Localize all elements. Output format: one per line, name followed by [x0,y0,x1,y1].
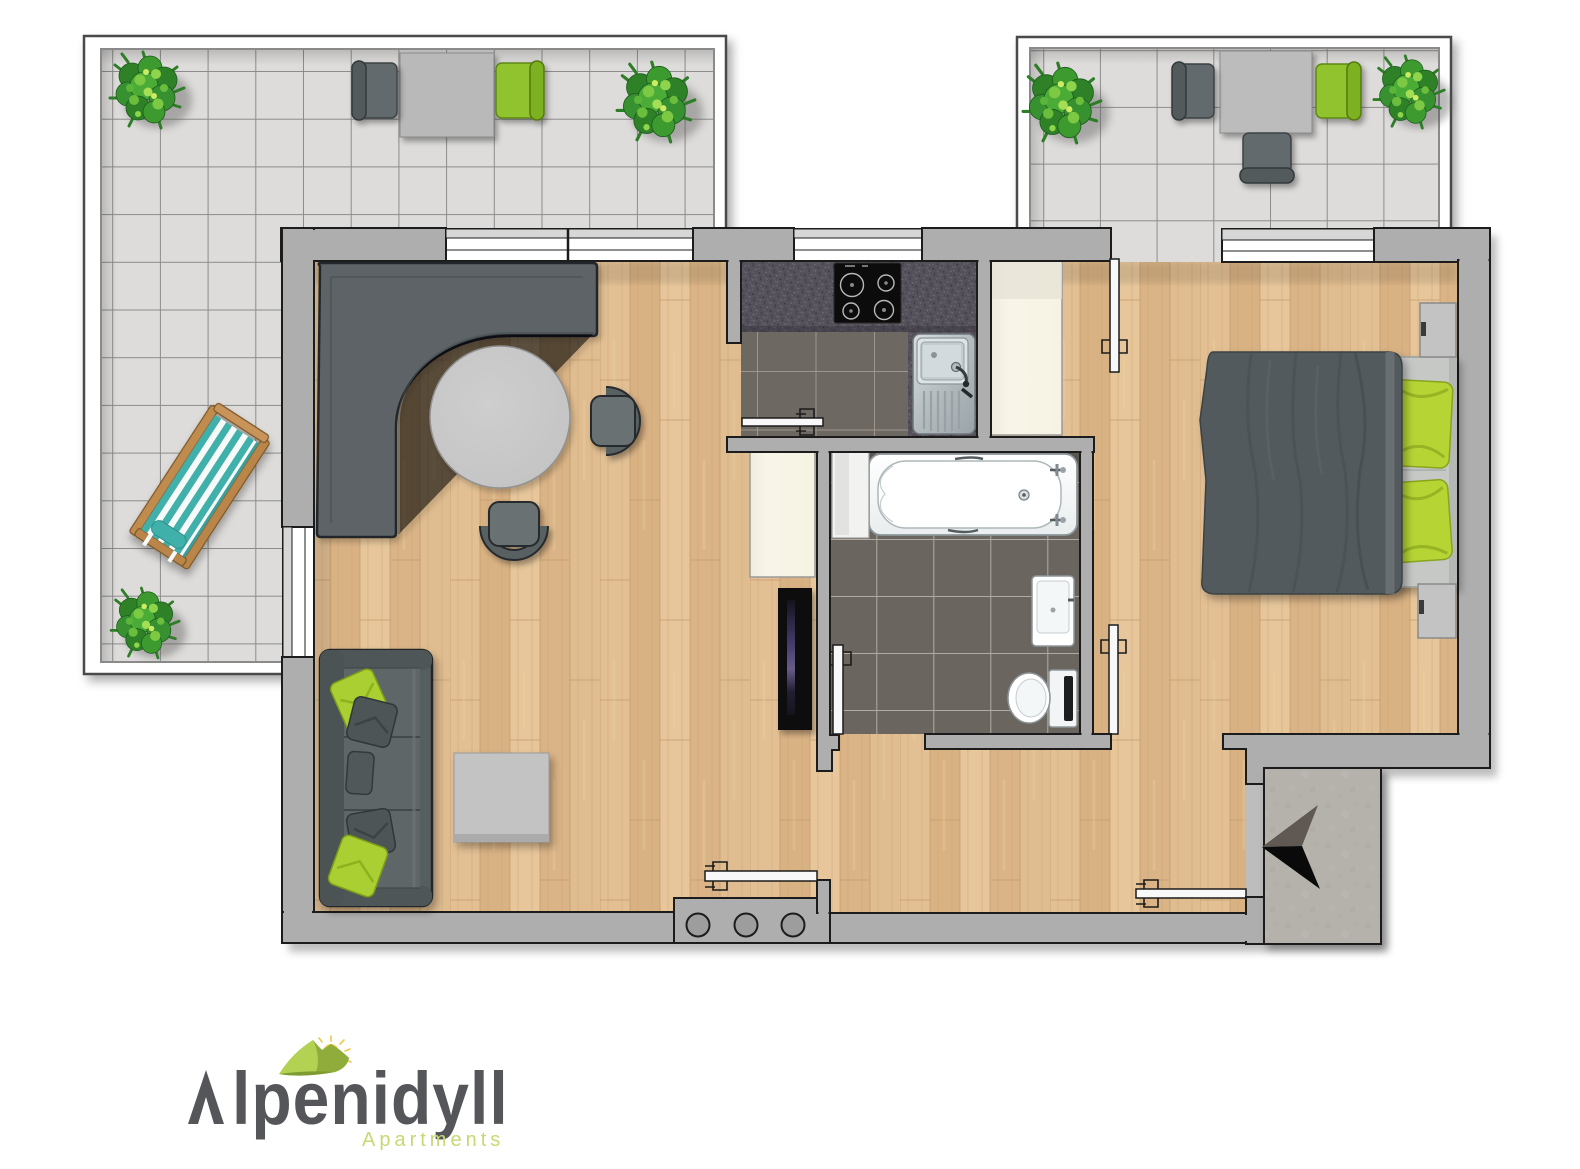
svg-text:Apartments: Apartments [362,1129,504,1151]
svg-text:lpenidyll: lpenidyll [232,1058,509,1140]
